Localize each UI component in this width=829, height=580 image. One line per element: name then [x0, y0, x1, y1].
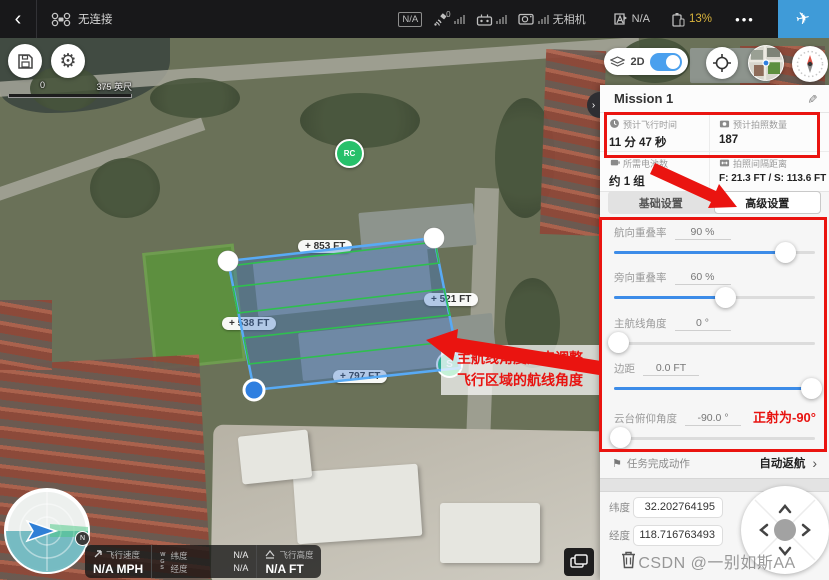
coords-section: W G S 纬度N/A 经度N/A: [151, 545, 256, 578]
clock-icon: [609, 118, 620, 131]
annotation-line1: 主航线角度用来调整: [441, 348, 599, 370]
stat-cell: 所需电池数 约 1 组: [600, 152, 710, 191]
edge-length-label-right: + 521 FT: [424, 293, 478, 306]
lng-label: 经度: [170, 563, 187, 575]
dpad-icon: [741, 486, 829, 574]
setting-label: 边距: [614, 361, 635, 376]
stat-label: 预计拍照数量: [733, 118, 787, 131]
dpad-down-icon: [780, 548, 790, 554]
map-buildings-red: [0, 300, 52, 370]
layers-icon: [610, 56, 625, 68]
setting-row: 云台俯仰角度 -90.0 ° 正射为-90°: [614, 400, 815, 445]
advanced-settings: 航向重叠率 90 % 旁向重叠率 60 %: [600, 218, 829, 445]
2d-label: 2D: [630, 56, 644, 68]
coordinate-label: 经度: [609, 528, 633, 543]
flight-mode-value: N/A: [632, 13, 650, 25]
map-layers-button[interactable]: [564, 548, 594, 576]
attitude-compass-widget[interactable]: N: [4, 488, 90, 574]
mission-title: Mission 1: [614, 91, 673, 106]
satellite-count: 0: [446, 10, 450, 19]
finish-action-value: 自动返航: [759, 455, 805, 471]
stat-cell: 拍照间隔距离 F: 21.3 FT / S: 113.6 FT: [710, 152, 829, 191]
slider-knob[interactable]: [775, 242, 796, 263]
tab-advanced[interactable]: 高级设置: [714, 191, 822, 214]
setting-value-input[interactable]: 90 %: [675, 226, 731, 240]
chevron-right-icon: ›: [812, 455, 817, 471]
setting-slider[interactable]: [614, 331, 815, 355]
camera-status[interactable]: 无相机: [518, 11, 586, 27]
flight-mode-status[interactable]: N/A: [613, 12, 650, 26]
dpad-left-icon: [761, 525, 767, 535]
flight-mode-icon: [613, 12, 628, 26]
setting-label: 云台俯仰角度: [614, 411, 677, 426]
battery-icon: [609, 157, 620, 170]
save-icon: [17, 53, 34, 70]
waypoint-dpad[interactable]: [741, 486, 829, 574]
setting-slider[interactable]: [614, 426, 815, 450]
setting-value-input[interactable]: 0 °: [675, 317, 731, 331]
back-button[interactable]: ‹: [0, 0, 37, 38]
trash-icon: [620, 550, 637, 569]
connection-status: 无连接: [78, 11, 113, 27]
map-scale-bar: 0 375 英尺: [8, 80, 132, 98]
map-mode-toggle[interactable]: 2D: [604, 48, 688, 75]
wgs-label: W G S: [160, 552, 165, 573]
stat-label: 所需电池数: [623, 157, 668, 170]
mission-header: Mission 1 ✎: [600, 85, 829, 113]
gps-signal-bars-icon: [454, 15, 465, 24]
delete-button[interactable]: [620, 550, 637, 574]
tab-basic[interactable]: 基础设置: [608, 191, 714, 214]
setting-value-input[interactable]: 0.0 FT: [643, 362, 699, 376]
slider-knob[interactable]: [715, 287, 736, 308]
setting-row: 主航线角度 0 °: [614, 309, 815, 354]
rc-position-marker[interactable]: RC: [335, 139, 364, 168]
telemetry-bar: 飞行速度 N/A MPH W G S 纬度N/A 经度N/A: [85, 545, 321, 578]
edge-length-label-left: + 538 FT: [222, 317, 276, 330]
map-sports-field: [142, 244, 246, 371]
altitude-icon: [265, 550, 275, 559]
minimap-button[interactable]: [748, 45, 784, 81]
camera-icon: [518, 13, 534, 25]
stat-value: F: 21.3 FT / S: 113.6 FT: [719, 173, 829, 184]
coordinate-input[interactable]: 118.716763493: [633, 525, 723, 546]
mission-stats-grid: 预计飞行时间 11 分 47 秒 预计拍照数量 187 所需电池数 约 1 组 …: [600, 113, 829, 192]
gear-icon: ⚙: [59, 50, 76, 73]
rc-status[interactable]: [476, 13, 507, 26]
camera-settings-button[interactable]: ⚙: [51, 44, 85, 78]
minimap-icon: [748, 45, 784, 81]
slider-knob[interactable]: [608, 332, 629, 353]
tutorial-annotation: 主航线角度用来调整 飞行区域的航线角度: [441, 345, 599, 395]
altitude-section: 飞行高度 N/A FT: [256, 545, 321, 578]
battery-icon: [671, 12, 685, 27]
edge-length-label-top: + 853 FT: [298, 240, 352, 253]
setting-row: 边距 0.0 FT: [614, 354, 815, 399]
gps-status[interactable]: 0: [433, 12, 464, 26]
edge-length-label-bottom: + 797 FT: [333, 370, 387, 383]
rc-marker-label: RC: [344, 149, 356, 158]
dpad-right-icon: [803, 525, 809, 535]
speed-value: N/A MPH: [93, 562, 143, 576]
top-bar: ‹ 无连接 N/A 0: [0, 0, 829, 38]
setting-label: 主航线角度: [614, 316, 667, 331]
settings-tabs: 基础设置高级设置: [608, 191, 821, 214]
link-quality-badge: N/A: [398, 12, 422, 27]
setting-label: 航向重叠率: [614, 225, 667, 240]
mission-panel: Mission 1 ✎ 预计飞行时间 11 分 47 秒 预计拍照数量 187 …: [600, 85, 829, 580]
stat-value: 约 1 组: [609, 173, 709, 189]
photo-count-icon: [719, 118, 730, 131]
setting-slider[interactable]: [614, 285, 815, 309]
setting-value-input[interactable]: 60 %: [675, 271, 731, 285]
crosshair-icon: [712, 53, 732, 73]
finish-action-label: 任务完成动作: [627, 456, 690, 471]
map-buildings-red: [540, 49, 606, 236]
annotation-line2: 飞行区域的航线角度: [441, 370, 599, 392]
scale-distance-label: 375 英尺: [96, 80, 132, 93]
stat-cell: 预计飞行时间 11 分 47 秒: [600, 113, 710, 152]
app-screen: S RC + 853 FT + 521 FT + 538 FT + 797 FT…: [0, 0, 829, 580]
speed-arrow-icon: [93, 550, 102, 559]
battery-percent: 13%: [689, 13, 712, 25]
map-layers-icon: [570, 554, 588, 570]
stat-label: 预计飞行时间: [623, 118, 677, 131]
more-menu-button[interactable]: •••: [723, 12, 767, 27]
stat-value: 187: [719, 134, 829, 146]
setting-row: 旁向重叠率 60 %: [614, 263, 815, 308]
setting-slider[interactable]: [614, 376, 815, 400]
save-mission-button[interactable]: [8, 44, 42, 78]
2d-toggle-switch[interactable]: [650, 53, 682, 71]
setting-label: 旁向重叠率: [614, 270, 667, 285]
setting-red-note: 正射为-90°: [753, 407, 816, 426]
setting-row: 航向重叠率 90 %: [614, 218, 815, 263]
speed-section: 飞行速度 N/A MPH: [85, 545, 151, 578]
lat-label: 纬度: [170, 550, 187, 562]
flag-icon: ⚑: [612, 457, 622, 470]
speed-label: 飞行速度: [106, 549, 140, 561]
locate-button[interactable]: [706, 47, 738, 79]
scale-zero-label: 0: [40, 80, 45, 93]
lat-value: N/A: [233, 550, 248, 562]
lng-value: N/A: [233, 563, 248, 575]
altitude-label: 飞行高度: [279, 549, 313, 561]
slider-knob[interactable]: [801, 378, 822, 399]
airplane-icon: ✈: [794, 8, 812, 31]
setting-slider[interactable]: [614, 240, 815, 264]
compass-reset-button[interactable]: [792, 46, 828, 82]
dpad-up-icon: [780, 506, 790, 512]
stat-cell: 预计拍照数量 187: [710, 113, 829, 152]
takeoff-button[interactable]: ✈: [778, 0, 829, 38]
interval-icon: [719, 157, 730, 170]
coordinate-label: 纬度: [609, 500, 633, 515]
setting-value-input[interactable]: -90.0 °: [685, 412, 741, 426]
coordinate-input[interactable]: 32.202764195: [633, 497, 723, 518]
compass-icon: [796, 50, 824, 78]
north-indicator: N: [75, 531, 90, 546]
polygon-handle-selected: [244, 380, 264, 400]
drone-icon: [51, 12, 71, 27]
camera-signal-bars-icon: [538, 15, 549, 24]
camera-status-label: 无相机: [553, 11, 586, 27]
slider-knob[interactable]: [610, 427, 631, 448]
stat-label: 拍照间隔距离: [733, 157, 787, 170]
finish-action-row[interactable]: ⚑ 任务完成动作 自动返航 ›: [600, 448, 829, 478]
attitude-compass-icon: [4, 488, 90, 574]
stat-value: 11 分 47 秒: [609, 134, 709, 150]
rc-signal-bars-icon: [496, 15, 507, 24]
altitude-value: N/A FT: [265, 562, 313, 576]
battery-status[interactable]: 13%: [671, 12, 712, 27]
edit-mission-icon[interactable]: ✎: [805, 93, 819, 103]
remote-controller-icon: [476, 13, 493, 26]
